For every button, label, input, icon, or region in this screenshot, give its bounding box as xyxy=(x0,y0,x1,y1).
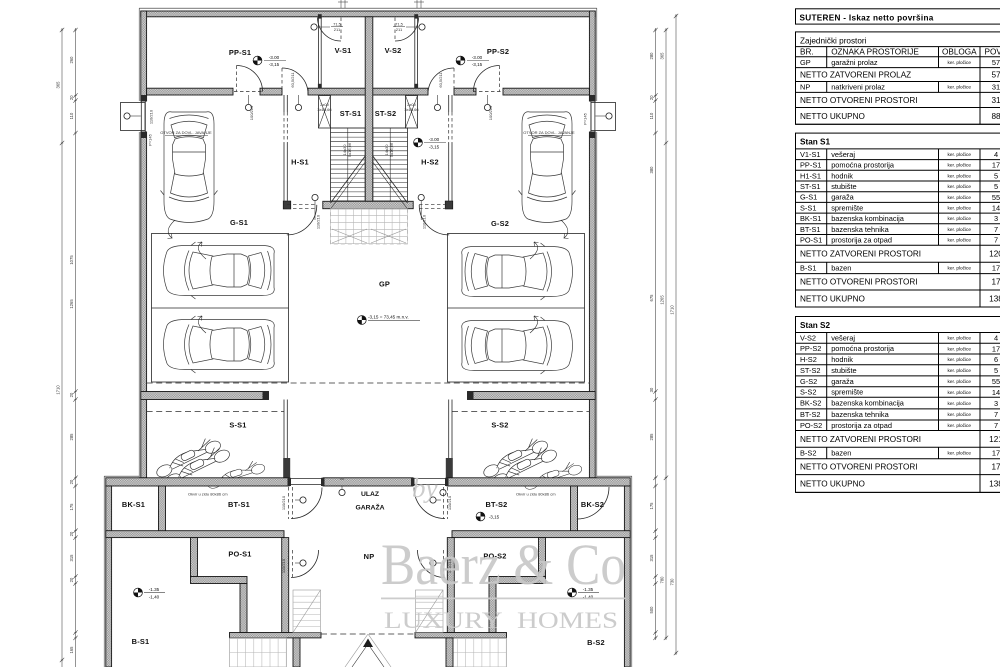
svg-text:BT-S1: BT-S1 xyxy=(228,500,250,509)
svg-text:138: 138 xyxy=(989,479,1000,488)
svg-text:bazenska kombinacija: bazenska kombinacija xyxy=(831,214,905,223)
svg-text:17: 17 xyxy=(992,264,1000,273)
svg-text:57: 57 xyxy=(992,58,1000,67)
svg-text:S-S2: S-S2 xyxy=(491,421,508,430)
svg-text:-1,40: -1,40 xyxy=(149,595,160,600)
svg-text:PO-S1: PO-S1 xyxy=(800,235,822,244)
svg-text:bazenska tehnika: bazenska tehnika xyxy=(831,225,889,234)
svg-text:ker. pločice: ker. pločice xyxy=(948,390,972,395)
svg-text:by: by xyxy=(412,473,438,503)
svg-text:ker. pločice: ker. pločice xyxy=(948,423,972,428)
svg-text:LUXURY HOMES: LUXURY HOMES xyxy=(384,608,618,633)
svg-text:PO-S2: PO-S2 xyxy=(800,421,822,430)
svg-text:365: 365 xyxy=(55,81,60,89)
svg-text:POVRŠINA: POVRŠINA xyxy=(985,47,1000,57)
svg-text:B-S2: B-S2 xyxy=(587,638,605,647)
svg-text:110/210: 110/210 xyxy=(316,214,321,229)
svg-text:stubište: stubište xyxy=(831,366,856,375)
svg-text:Stan S1: Stan S1 xyxy=(800,137,830,146)
svg-text:5x16,66: 5x16,66 xyxy=(389,142,394,157)
svg-text:hodnik: hodnik xyxy=(831,171,853,180)
svg-text:780: 780 xyxy=(659,576,664,584)
svg-text:20: 20 xyxy=(69,95,74,100)
svg-text:ULAZ: ULAZ xyxy=(361,491,379,498)
svg-text:14: 14 xyxy=(992,203,1000,212)
svg-text:3x16,66: 3x16,66 xyxy=(404,107,419,112)
svg-text:-1.35: -1.35 xyxy=(149,587,160,592)
svg-text:ker. pločice: ker. pločice xyxy=(948,184,972,189)
svg-text:Stan S2: Stan S2 xyxy=(800,321,830,330)
svg-text:S-S1: S-S1 xyxy=(800,203,816,212)
svg-text:BT-S1: BT-S1 xyxy=(800,225,821,234)
svg-text:bazenska tehnika: bazenska tehnika xyxy=(831,410,889,419)
svg-text:NP: NP xyxy=(364,552,375,561)
svg-text:14: 14 xyxy=(992,388,1000,397)
svg-text:hodnik: hodnik xyxy=(831,355,853,364)
svg-text:OBLOGA: OBLOGA xyxy=(942,48,977,57)
svg-text:1710: 1710 xyxy=(669,305,674,315)
svg-text:ker. pločice: ker. pločice xyxy=(948,152,972,157)
svg-text:110/210: 110/210 xyxy=(422,214,427,229)
svg-text:17: 17 xyxy=(991,278,1000,287)
svg-text:100/210: 100/210 xyxy=(488,105,493,120)
svg-text:165: 165 xyxy=(69,646,74,654)
svg-text:H-S2: H-S2 xyxy=(421,158,439,167)
svg-text:BT-S2: BT-S2 xyxy=(800,410,821,419)
svg-text:ST-S1: ST-S1 xyxy=(800,182,821,191)
svg-text:ker. pločice: ker. pločice xyxy=(948,216,972,221)
svg-text:ker. pločice: ker. pločice xyxy=(948,163,972,168)
svg-text:4: 4 xyxy=(994,334,998,343)
svg-text:500: 500 xyxy=(649,606,654,614)
svg-text:PP-S2: PP-S2 xyxy=(800,344,821,353)
svg-text:30: 30 xyxy=(649,387,654,392)
svg-text:138: 138 xyxy=(989,294,1000,303)
svg-text:-3.00: -3.00 xyxy=(429,137,440,142)
svg-text:110/210: 110/210 xyxy=(281,558,286,573)
svg-text:1075: 1075 xyxy=(69,255,74,265)
svg-text:NETTO UKUPNO: NETTO UKUPNO xyxy=(800,479,865,488)
svg-text:120: 120 xyxy=(989,250,1000,259)
svg-text:365: 365 xyxy=(659,52,664,60)
svg-text:spremište: spremište xyxy=(831,388,863,397)
svg-text:Okvir u zidu 80x86 cm: Okvir u zidu 80x86 cm xyxy=(188,492,228,497)
svg-text:110/210: 110/210 xyxy=(447,495,452,510)
svg-text:315: 315 xyxy=(69,554,74,562)
svg-text:OTVOR ZA DOVL. JAVANJE: OTVOR ZA DOVL. JAVANJE xyxy=(523,130,575,135)
svg-text:V-S2: V-S2 xyxy=(385,46,402,55)
svg-text:V1-S1: V1-S1 xyxy=(800,150,821,159)
svg-text:H-S1: H-S1 xyxy=(291,158,309,167)
svg-text:6: 6 xyxy=(994,355,998,364)
svg-text:OZNAKA PROSTORIJE: OZNAKA PROSTORIJE xyxy=(831,48,919,57)
svg-text:S-S2: S-S2 xyxy=(800,388,816,397)
svg-text:PP-S1: PP-S1 xyxy=(229,48,251,57)
svg-text:Okvir u zidu 80x86 cm: Okvir u zidu 80x86 cm xyxy=(516,492,556,497)
svg-text:ker. pločice: ker. pločice xyxy=(948,173,972,178)
svg-text:SUTEREN - Iskaz netto površina: SUTEREN - Iskaz netto površina xyxy=(800,14,934,23)
svg-text:pomoćna prostorija: pomoćna prostorija xyxy=(831,344,895,353)
svg-text:110: 110 xyxy=(69,112,74,119)
svg-text:55: 55 xyxy=(992,377,1000,386)
svg-text:BK-S2: BK-S2 xyxy=(581,500,604,509)
svg-text:20: 20 xyxy=(69,479,74,484)
svg-text:175: 175 xyxy=(69,503,74,511)
svg-text:280: 280 xyxy=(649,52,654,60)
svg-text:55: 55 xyxy=(992,193,1000,202)
svg-text:G-S1: G-S1 xyxy=(230,218,248,227)
svg-text:NP: NP xyxy=(800,83,810,92)
svg-text:ker. pločice: ker. pločice xyxy=(948,451,972,456)
svg-text:ker. pločice: ker. pločice xyxy=(948,357,972,362)
svg-text:260: 260 xyxy=(69,56,74,64)
svg-text:5: 5 xyxy=(994,171,998,180)
svg-text:PO-S1: PO-S1 xyxy=(228,550,251,559)
svg-text:ST-S2: ST-S2 xyxy=(375,109,397,118)
svg-text:4: 4 xyxy=(994,150,998,159)
svg-text:prostorija za otpad: prostorija za otpad xyxy=(831,421,892,430)
svg-text:20: 20 xyxy=(69,577,74,582)
svg-text:garaža: garaža xyxy=(831,377,854,386)
svg-text:5: 5 xyxy=(994,366,998,375)
svg-text:110: 110 xyxy=(649,112,654,119)
svg-text:-3.00: -3.00 xyxy=(472,55,483,60)
svg-text:211: 211 xyxy=(396,27,403,32)
svg-text:-3,15: -3,15 xyxy=(489,515,500,520)
svg-text:garažni prolaz: garažni prolaz xyxy=(831,58,878,67)
svg-text:ker. pločice: ker. pločice xyxy=(948,60,972,65)
svg-text:7: 7 xyxy=(994,225,998,234)
svg-text:285: 285 xyxy=(69,433,74,441)
svg-text:100/210: 100/210 xyxy=(249,105,254,120)
svg-text:5x16,66: 5x16,66 xyxy=(347,142,352,157)
svg-text:57: 57 xyxy=(991,70,1000,79)
svg-text:-3,15: -3,15 xyxy=(472,62,483,67)
svg-text:-3,15: -3,15 xyxy=(269,62,280,67)
svg-text:NETTO OTVORENI PROSTORI: NETTO OTVORENI PROSTORI xyxy=(800,278,918,287)
svg-text:17: 17 xyxy=(992,449,1000,458)
svg-text:71,5: 71,5 xyxy=(333,22,342,27)
svg-text:BK-S2: BK-S2 xyxy=(800,399,821,408)
svg-text:stubište: stubište xyxy=(831,182,856,191)
svg-text:B-S1: B-S1 xyxy=(132,637,150,646)
svg-text:7: 7 xyxy=(994,421,998,430)
svg-text:Zajednički prostori: Zajednički prostori xyxy=(800,36,867,45)
svg-text:3: 3 xyxy=(994,399,998,408)
svg-text:ST-S1: ST-S1 xyxy=(340,109,362,118)
svg-text:ker. pločice: ker. pločice xyxy=(948,368,972,373)
svg-text:GP: GP xyxy=(800,58,811,67)
svg-text:17: 17 xyxy=(992,161,1000,170)
svg-text:20: 20 xyxy=(69,392,74,397)
svg-text:bazenska kombinacija: bazenska kombinacija xyxy=(831,399,905,408)
svg-text:BT-S2: BT-S2 xyxy=(486,500,508,509)
svg-text:00: 00 xyxy=(340,476,345,481)
svg-text:bazen: bazen xyxy=(831,264,851,273)
svg-text:-3.00: -3.00 xyxy=(269,55,280,60)
svg-text:121: 121 xyxy=(989,435,1000,444)
svg-text:B-S2: B-S2 xyxy=(800,449,816,458)
svg-text:20: 20 xyxy=(69,531,74,536)
svg-text:88: 88 xyxy=(991,112,1000,121)
svg-text:380: 380 xyxy=(649,166,654,174)
svg-text:V-S2: V-S2 xyxy=(800,333,816,342)
svg-text:ker. pločice: ker. pločice xyxy=(948,85,972,90)
svg-text:1710: 1710 xyxy=(55,385,60,395)
svg-text:P=145: P=145 xyxy=(148,133,153,145)
svg-text:71,5: 71,5 xyxy=(395,22,404,27)
svg-text:pomoćna prostorija: pomoćna prostorija xyxy=(831,161,895,170)
svg-text:NETTO UKUPNO: NETTO UKUPNO xyxy=(800,294,865,303)
svg-text:ker. pločice: ker. pločice xyxy=(948,336,972,341)
svg-text:garaža: garaža xyxy=(831,193,854,202)
svg-text:ker. pločice: ker. pločice xyxy=(948,266,972,271)
svg-text:315: 315 xyxy=(649,554,654,562)
svg-text:vešeraj: vešeraj xyxy=(831,150,855,159)
svg-text:BK-S1: BK-S1 xyxy=(122,500,145,509)
svg-text:730: 730 xyxy=(669,578,674,586)
svg-text:1265: 1265 xyxy=(659,295,664,305)
svg-text:1265: 1265 xyxy=(69,299,74,309)
svg-text:prostorija za otpad: prostorija za otpad xyxy=(831,235,892,244)
svg-text:-3,15 = 73,45 m.n.v.: -3,15 = 73,45 m.n.v. xyxy=(368,315,409,320)
svg-text:5: 5 xyxy=(994,182,998,191)
svg-text:B-S1: B-S1 xyxy=(800,264,816,273)
svg-text:31: 31 xyxy=(991,96,1000,105)
svg-text:P=145: P=145 xyxy=(583,112,588,124)
svg-text:NETTO ZATVORENI PROSTORI: NETTO ZATVORENI PROSTORI xyxy=(800,250,921,259)
svg-text:675: 675 xyxy=(649,294,654,302)
svg-text:3: 3 xyxy=(994,214,998,223)
svg-text:ker. pločice: ker. pločice xyxy=(948,379,972,384)
svg-text:GP: GP xyxy=(379,280,390,289)
svg-text:NETTO ZATVORENI PROLAZ: NETTO ZATVORENI PROLAZ xyxy=(800,70,911,79)
svg-text:ST-S2: ST-S2 xyxy=(800,366,821,375)
svg-text:110/210: 110/210 xyxy=(149,109,154,124)
svg-text:17: 17 xyxy=(991,463,1000,472)
svg-text:H-S2: H-S2 xyxy=(800,355,817,364)
svg-text:NETTO OTVORENI PROSTORI: NETTO OTVORENI PROSTORI xyxy=(800,96,918,105)
svg-text:H1-S1: H1-S1 xyxy=(800,171,821,180)
svg-text:60,5/211: 60,5/211 xyxy=(438,72,443,88)
svg-text:G-S2: G-S2 xyxy=(491,219,509,228)
svg-text:7: 7 xyxy=(994,410,998,419)
svg-text:211: 211 xyxy=(334,27,341,32)
svg-text:ker. pločice: ker. pločice xyxy=(948,346,972,351)
svg-text:GARAŽA: GARAŽA xyxy=(355,503,384,512)
svg-text:ker. pločice: ker. pločice xyxy=(948,195,972,200)
svg-text:OTVOR ZA DOVL. JAVANJE: OTVOR ZA DOVL. JAVANJE xyxy=(160,130,212,135)
svg-text:3x16,66: 3x16,66 xyxy=(317,107,332,112)
svg-text:BK-S1: BK-S1 xyxy=(800,214,821,223)
svg-text:V-S1: V-S1 xyxy=(335,46,352,55)
svg-text:spremište: spremište xyxy=(831,203,863,212)
svg-text:bazen: bazen xyxy=(831,449,851,458)
svg-text:ker. pločice: ker. pločice xyxy=(948,238,972,243)
svg-text:ker. pločice: ker. pločice xyxy=(948,401,972,406)
svg-text:175: 175 xyxy=(649,502,654,510)
svg-text:Baerz & Co: Baerz & Co xyxy=(381,532,626,597)
svg-text:G-S1: G-S1 xyxy=(800,193,817,202)
svg-text:NETTO OTVORENI PROSTORI: NETTO OTVORENI PROSTORI xyxy=(800,463,918,472)
svg-text:NETTO ZATVORENI PROSTORI: NETTO ZATVORENI PROSTORI xyxy=(800,435,921,444)
svg-text:G-S2: G-S2 xyxy=(800,377,817,386)
svg-text:7: 7 xyxy=(994,236,998,245)
svg-text:PP-S1: PP-S1 xyxy=(800,161,821,170)
svg-text:BR.: BR. xyxy=(800,48,814,57)
svg-text:ker. pločice: ker. pločice xyxy=(948,412,972,417)
svg-text:NETTO UKUPNO: NETTO UKUPNO xyxy=(800,112,865,121)
svg-text:ker. pločice: ker. pločice xyxy=(948,205,972,210)
svg-text:110/210: 110/210 xyxy=(281,495,286,510)
svg-text:S-S1: S-S1 xyxy=(229,421,246,430)
svg-text:ker. pločice: ker. pločice xyxy=(948,227,972,232)
svg-text:17: 17 xyxy=(992,344,1000,353)
svg-text:20: 20 xyxy=(649,95,654,100)
svg-text:31: 31 xyxy=(992,83,1000,92)
svg-text:vešeraj: vešeraj xyxy=(831,333,855,342)
svg-text:285: 285 xyxy=(649,433,654,441)
svg-text:PP-S2: PP-S2 xyxy=(487,47,509,56)
svg-text:natkriveni prolaz: natkriveni prolaz xyxy=(831,83,885,92)
svg-text:-3,15: -3,15 xyxy=(429,145,440,150)
svg-text:60,5/211: 60,5/211 xyxy=(290,72,295,88)
